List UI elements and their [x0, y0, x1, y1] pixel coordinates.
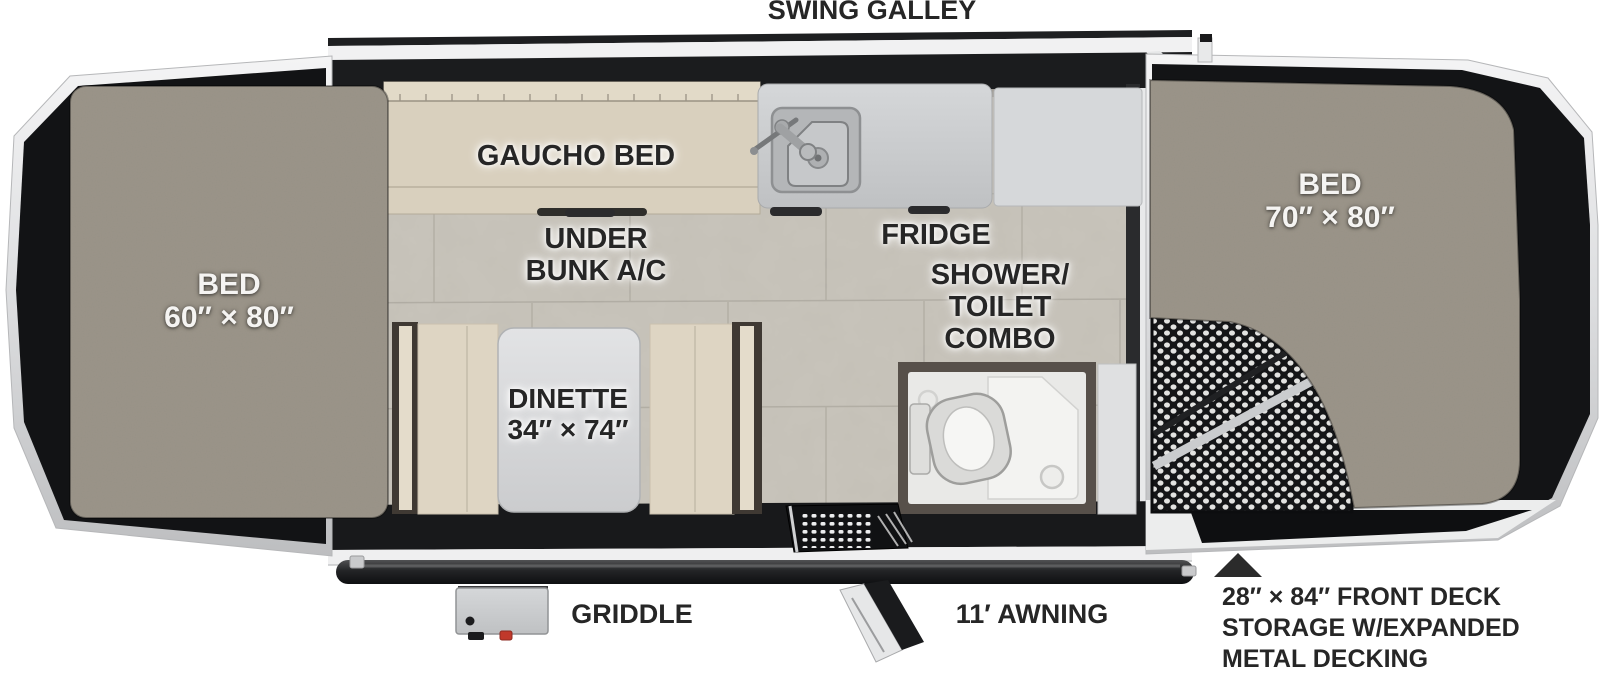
gaucho-bed-label: GAUCHO BED [477, 141, 675, 173]
dinette-label: DINETTE 34″ × 74″ [507, 384, 628, 446]
griddle-knob [466, 617, 475, 626]
griddle-gas-fitting [500, 631, 512, 640]
shower-toilet-label: SHOWER/ TOILET COMBO [931, 260, 1070, 356]
swing-galley-label: SWING GALLEY [768, 0, 977, 26]
shower-toilet-combo [898, 362, 1136, 514]
fridge-cabinet [994, 88, 1142, 206]
fridge-label: FRIDGE [881, 220, 991, 252]
rv-floorplan-diagram: SWING GALLEY BED 60″ × 80″ BED 70″ × 80″… [0, 0, 1600, 677]
right-bed-label: BED 70″ × 80″ [1265, 168, 1395, 234]
toilet-tank [910, 404, 930, 474]
entry-step [786, 504, 912, 552]
right-bed-tent [1140, 34, 1598, 554]
pointer-triangle [1214, 553, 1262, 577]
griddle-label: GRIDDLE [571, 600, 693, 630]
under-bunk-ac-label: UNDER BUNK A/C [526, 224, 667, 288]
entry-door-open [840, 580, 924, 662]
front-deck-label: 28″ × 84″ FRONT DECK STORAGE W/EXPANDED … [1222, 582, 1520, 675]
shower-drain [1041, 466, 1063, 488]
floorplan-drawing [0, 0, 1600, 677]
griddle-box [456, 586, 548, 640]
dinette-left-cushion [418, 324, 498, 514]
bath-cabinet [1098, 364, 1136, 514]
left-bed-label: BED 60″ × 80″ [164, 268, 294, 334]
awning-roller [336, 556, 1196, 584]
awning-label: 11′ AWNING [956, 600, 1109, 630]
bed-lift-bracket [1198, 34, 1212, 62]
dinette-right-cushion [650, 324, 734, 514]
